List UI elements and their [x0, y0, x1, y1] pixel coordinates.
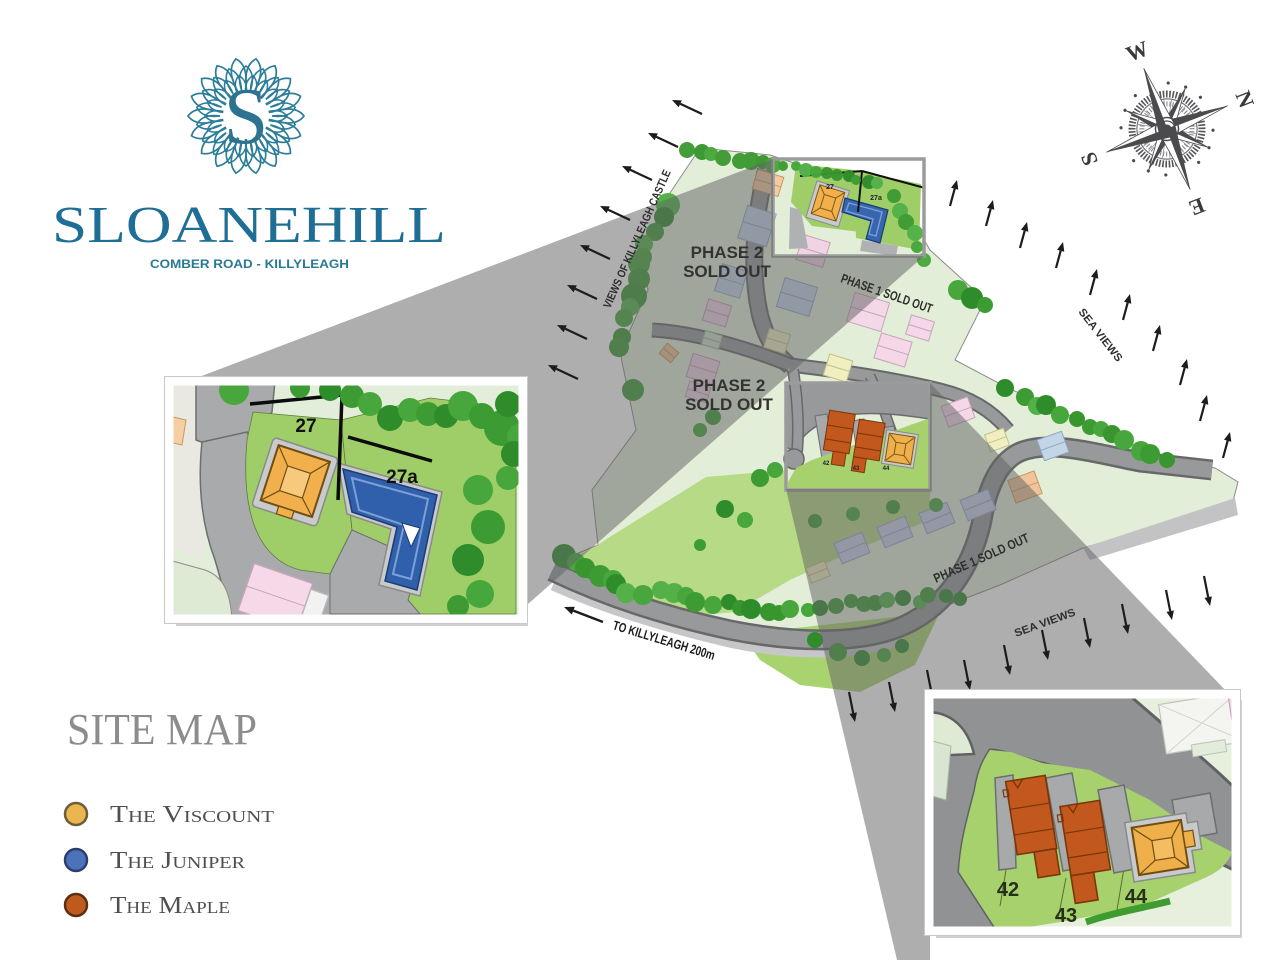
svg-text:COMBER ROAD - KILLYLEAGH: COMBER ROAD - KILLYLEAGH: [150, 259, 349, 271]
svg-text:42: 42: [997, 879, 1019, 901]
svg-text:27a: 27a: [386, 467, 418, 488]
svg-text:43: 43: [853, 466, 860, 472]
svg-text:SITE MAP: SITE MAP: [67, 705, 257, 754]
svg-text:The Maple: The Maple: [110, 893, 230, 919]
svg-text:42: 42: [823, 461, 830, 467]
svg-text:SOLD OUT: SOLD OUT: [685, 395, 773, 414]
svg-text:PHASE 2: PHASE 2: [691, 243, 764, 262]
svg-text:44: 44: [883, 466, 890, 472]
svg-text:The Viscount: The Viscount: [110, 802, 275, 828]
svg-text:PHASE 2: PHASE 2: [693, 376, 766, 395]
svg-text:43: 43: [1055, 905, 1077, 927]
svg-text:SOLD OUT: SOLD OUT: [683, 262, 771, 281]
svg-text:27a: 27a: [870, 195, 882, 202]
svg-text:The Juniper: The Juniper: [110, 848, 246, 874]
svg-text:SLOANEHILL: SLOANEHILL: [52, 197, 446, 254]
svg-text:S: S: [224, 73, 269, 161]
svg-text:27: 27: [295, 416, 316, 437]
svg-text:27: 27: [826, 184, 834, 191]
